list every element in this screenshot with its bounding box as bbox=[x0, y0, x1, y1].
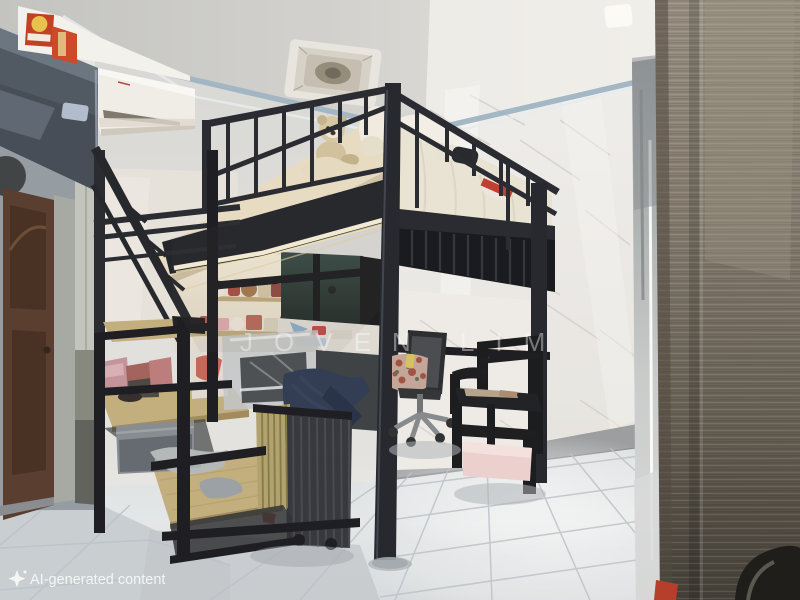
svg-text:JOVEN LIM: JOVEN LIM bbox=[240, 327, 566, 357]
svg-text:AI-generated content: AI-generated content bbox=[30, 572, 165, 588]
